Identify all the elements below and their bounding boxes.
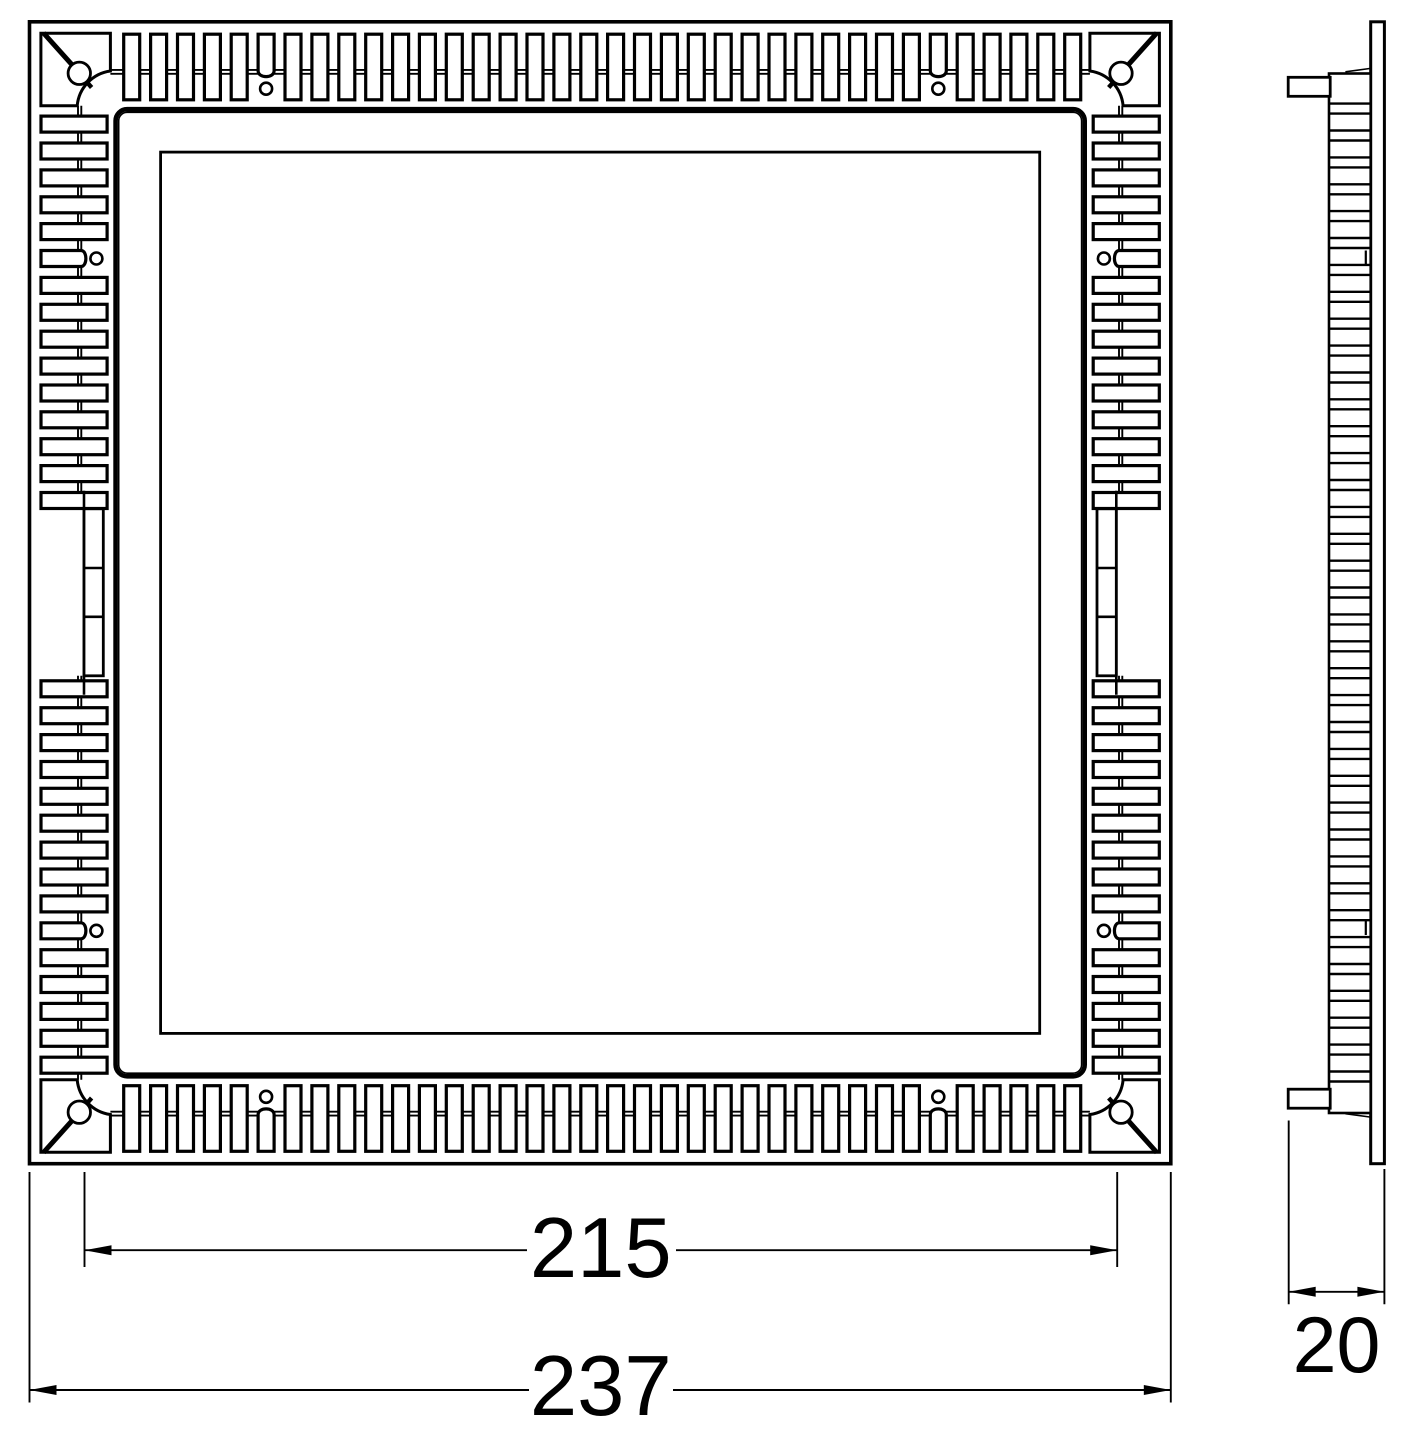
svg-text:20: 20 bbox=[1293, 1300, 1381, 1389]
svg-text:215: 215 bbox=[530, 1201, 672, 1296]
svg-text:237: 237 bbox=[530, 1339, 672, 1433]
